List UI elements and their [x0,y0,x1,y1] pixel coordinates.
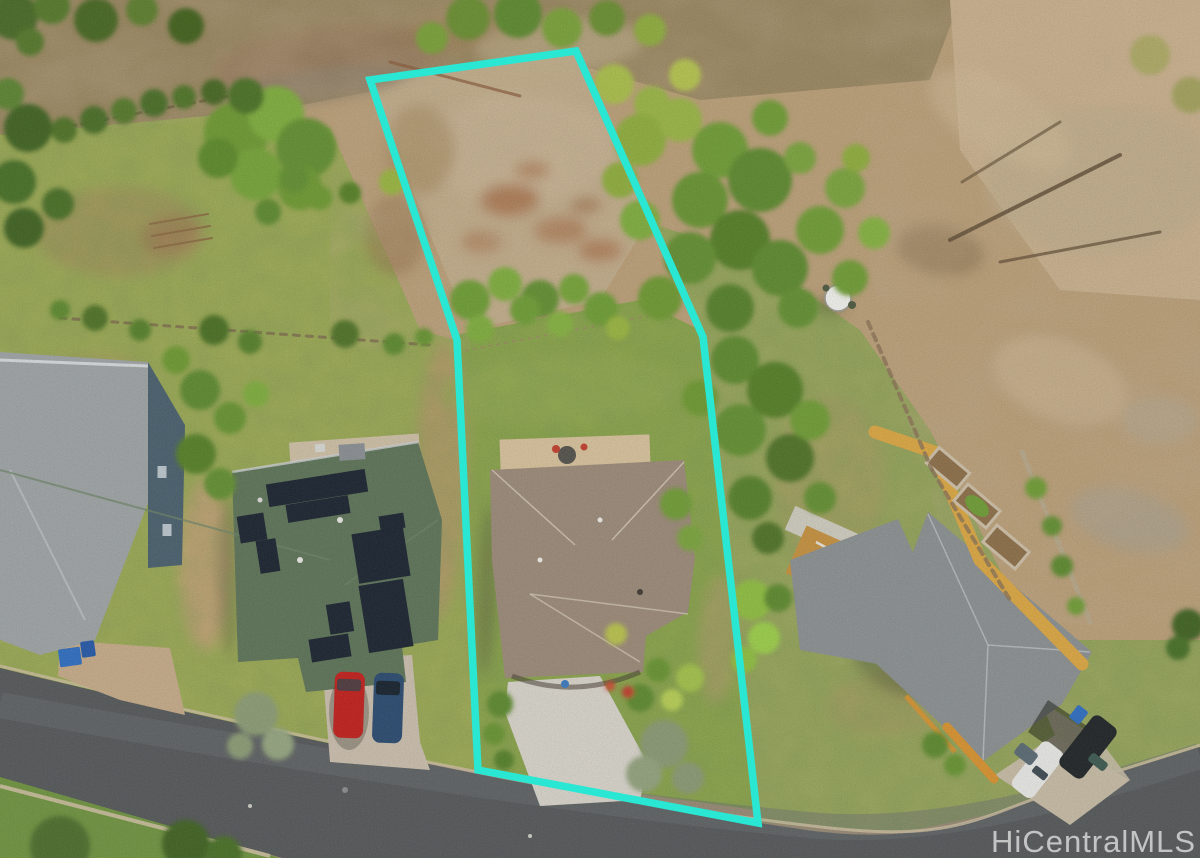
photo-grain-light [0,0,1200,858]
mls-watermark: HiCentralMLS [991,824,1196,858]
aerial-photo-stage: HiCentralMLS [0,0,1200,858]
aerial-photo: HiCentralMLS [0,0,1200,858]
